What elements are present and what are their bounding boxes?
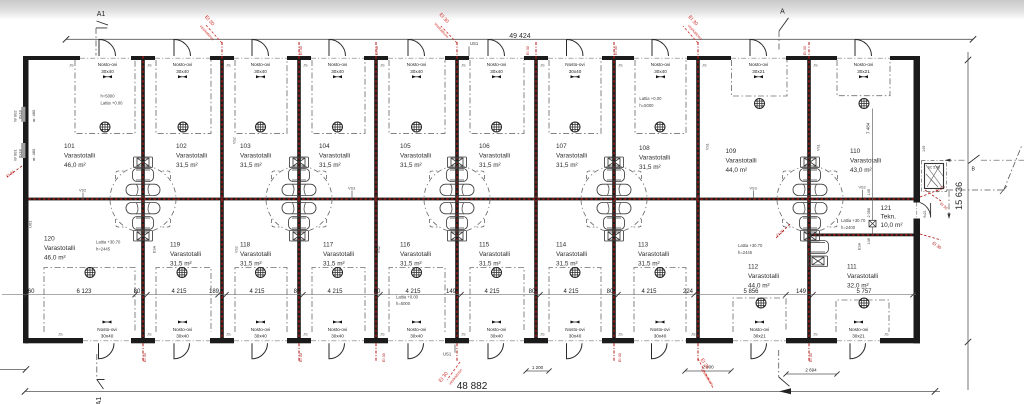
svg-text:Nosto-ovi: Nosto-ovi <box>251 327 270 332</box>
svg-text:224: 224 <box>683 289 694 295</box>
svg-text:30x40: 30x40 <box>569 69 582 74</box>
svg-text:A: A <box>780 9 785 16</box>
svg-text:31,5 m²: 31,5 m² <box>479 162 501 169</box>
svg-text:30x21: 30x21 <box>753 334 766 339</box>
svg-text:JS: JS <box>540 62 545 67</box>
svg-text:30x40: 30x40 <box>410 69 423 74</box>
svg-text:260: 260 <box>24 289 35 295</box>
svg-text:Nosto-ovi: Nosto-ovi <box>173 327 192 332</box>
svg-text:4 215: 4 215 <box>484 289 500 295</box>
svg-text:7 484: 7 484 <box>866 122 871 134</box>
svg-text:46,0 m²: 46,0 m² <box>64 162 86 169</box>
svg-text:30x40: 30x40 <box>331 334 344 339</box>
svg-text:Nosto-ovi: Nosto-ovi <box>487 62 506 67</box>
svg-text:106: 106 <box>479 143 490 150</box>
svg-text:2 056: 2 056 <box>867 208 871 218</box>
svg-text:JS: JS <box>147 332 152 337</box>
svg-text:Varastotalli: Varastotalli <box>556 153 587 160</box>
svg-text:JS: JS <box>303 332 308 337</box>
svg-text:JS: JS <box>691 332 696 337</box>
svg-text:80: 80 <box>134 289 141 295</box>
svg-text:30x21: 30x21 <box>857 69 870 74</box>
svg-text:102: 102 <box>176 143 187 150</box>
svg-text:Lattia +30.70: Lattia +30.70 <box>841 218 866 223</box>
svg-text:h=2445: h=2445 <box>738 250 753 255</box>
svg-text:Nosto-ovi: Nosto-ovi <box>651 62 670 67</box>
svg-text:JS: JS <box>702 62 707 67</box>
svg-text:31,5 m²: 31,5 m² <box>400 162 422 169</box>
svg-text:U01: U01 <box>28 220 33 228</box>
svg-text:30x21: 30x21 <box>752 69 765 74</box>
svg-text:115: 115 <box>479 242 490 249</box>
svg-text:B: B <box>972 167 976 173</box>
svg-text:112: 112 <box>748 264 759 271</box>
svg-text:44,0 m²: 44,0 m² <box>726 167 748 174</box>
svg-text:Lattia +30.70: Lattia +30.70 <box>96 240 121 245</box>
svg-text:6 123: 6 123 <box>76 289 92 295</box>
svg-text:ESA: ESA <box>858 242 862 250</box>
svg-text:Nosto-ovi: Nosto-ovi <box>749 62 768 67</box>
svg-text:5 856: 5 856 <box>743 289 759 295</box>
svg-text:1 200: 1 200 <box>532 365 544 370</box>
svg-text:JS: JS <box>147 62 152 67</box>
svg-text:30x21: 30x21 <box>852 334 865 339</box>
svg-text:JS: JS <box>303 62 308 67</box>
svg-text:30x40: 30x40 <box>569 334 582 339</box>
svg-text:VS3: VS3 <box>348 187 355 191</box>
svg-text:Nosto-ovi: Nosto-ovi <box>650 327 669 332</box>
svg-text:30x40: 30x40 <box>654 334 667 339</box>
svg-text:Nosto-ovi: Nosto-ovi <box>98 62 117 67</box>
svg-text:31,5 m²: 31,5 m² <box>639 164 661 171</box>
svg-text:JS: JS <box>618 332 623 337</box>
svg-text:Varastotalli: Varastotalli <box>240 251 271 258</box>
svg-text:Nosto-ovi: Nosto-ovi <box>407 327 426 332</box>
svg-text:117: 117 <box>323 242 334 249</box>
svg-text:Varastotalli: Varastotalli <box>176 153 207 160</box>
svg-text:h=5000: h=5000 <box>639 103 654 108</box>
svg-text:107: 107 <box>556 143 567 150</box>
svg-text:Nosto-ovi: Nosto-ovi <box>849 327 868 332</box>
svg-text:120: 120 <box>44 236 55 243</box>
svg-text:103: 103 <box>240 143 251 150</box>
svg-text:Nosto-ovi: Nosto-ovi <box>407 62 426 67</box>
svg-text:30x40: 30x40 <box>654 69 667 74</box>
svg-text:31,5 m²: 31,5 m² <box>240 260 262 267</box>
svg-text:Varastotalli: Varastotalli <box>240 153 271 160</box>
svg-text:Nosto-ovi: Nosto-ovi <box>854 62 873 67</box>
svg-text:JS: JS <box>618 62 623 67</box>
svg-text:80: 80 <box>294 289 301 295</box>
svg-text:JS: JS <box>461 332 466 337</box>
svg-text:VS3: VS3 <box>750 187 757 191</box>
svg-text:US1: US1 <box>443 352 452 357</box>
svg-text:ESA: ESA <box>153 245 157 253</box>
svg-text:30x40: 30x40 <box>490 69 503 74</box>
svg-text:Lattia +30.70: Lattia +30.70 <box>738 243 763 248</box>
svg-text:5 757: 5 757 <box>856 289 872 295</box>
svg-text:VS2: VS2 <box>377 246 381 253</box>
svg-text:2 694: 2 694 <box>805 367 817 372</box>
svg-text:Varastotalli: Varastotalli <box>400 153 431 160</box>
svg-text:6x18: 6x18 <box>18 149 23 158</box>
svg-text:31,5 m²: 31,5 m² <box>400 260 422 267</box>
svg-text:EI 30: EI 30 <box>803 46 807 55</box>
svg-text:Varastotalli: Varastotalli <box>850 158 881 165</box>
svg-text:Lattia +0.00: Lattia +0.00 <box>396 295 419 300</box>
svg-text:JS: JS <box>540 332 545 337</box>
svg-text:EI 30: EI 30 <box>299 46 303 55</box>
svg-text:30x40: 30x40 <box>254 69 267 74</box>
svg-text:149: 149 <box>796 289 807 295</box>
svg-text:101: 101 <box>64 143 75 150</box>
svg-text:111: 111 <box>847 264 857 271</box>
svg-text:31,5 m²: 31,5 m² <box>240 162 262 169</box>
svg-text:80: 80 <box>374 289 381 295</box>
svg-text:A1: A1 <box>97 11 106 18</box>
svg-text:Varastotalli: Varastotalli <box>639 155 670 162</box>
svg-text:118: 118 <box>240 242 251 249</box>
svg-text:48 882: 48 882 <box>457 381 488 392</box>
svg-text:109: 109 <box>726 148 737 155</box>
svg-text:Varastotalli: Varastotalli <box>323 251 354 258</box>
svg-text:4 215: 4 215 <box>249 289 265 295</box>
svg-text:30x40: 30x40 <box>101 334 114 339</box>
svg-text:EI 30: EI 30 <box>382 353 386 362</box>
svg-text:Nosto-ovi: Nosto-ovi <box>173 62 192 67</box>
svg-text:80: 80 <box>607 289 614 295</box>
svg-text:JS: JS <box>69 62 74 67</box>
svg-text:9x21: 9x21 <box>923 210 927 218</box>
svg-text:43,0 m²: 43,0 m² <box>850 167 872 174</box>
svg-text:Nosto-ovi: Nosto-ovi <box>97 327 116 332</box>
svg-text:4 215: 4 215 <box>563 289 579 295</box>
svg-text:30x40: 30x40 <box>176 334 189 339</box>
svg-text:Varastotalli: Varastotalli <box>479 153 510 160</box>
svg-text:104: 104 <box>319 143 330 150</box>
svg-text:149: 149 <box>446 289 457 295</box>
svg-text:A1: A1 <box>96 397 103 404</box>
svg-text:Nosto-ovi: Nosto-ovi <box>565 327 584 332</box>
svg-text:30x40: 30x40 <box>176 69 189 74</box>
svg-text:JS: JS <box>884 332 889 337</box>
svg-text:Nosto-ovi: Nosto-ovi <box>328 62 347 67</box>
svg-text:31,5 m²: 31,5 m² <box>556 162 578 169</box>
svg-text:h=2400: h=2400 <box>841 225 856 230</box>
svg-text:31,5 m²: 31,5 m² <box>319 162 341 169</box>
svg-text:Varastotalli: Varastotalli <box>748 273 779 280</box>
svg-text:EI 30: EI 30 <box>809 353 813 362</box>
svg-text:Varastotalli: Varastotalli <box>556 251 587 258</box>
svg-text:116: 116 <box>400 242 411 249</box>
svg-text:108: 108 <box>639 145 650 152</box>
svg-text:121: 121 <box>881 205 892 212</box>
svg-text:JS: JS <box>58 332 63 337</box>
svg-text:VS1: VS1 <box>706 143 710 150</box>
svg-text:Varastotalli: Varastotalli <box>638 251 669 258</box>
svg-text:VS2: VS2 <box>79 189 86 193</box>
svg-text:Varastotalli: Varastotalli <box>847 273 878 280</box>
svg-text:Nosto-ovi: Nosto-ovi <box>487 327 506 332</box>
svg-text:110: 110 <box>850 148 861 155</box>
svg-text:Varastotalli: Varastotalli <box>400 251 431 258</box>
svg-text:Lattia +0.00: Lattia +0.00 <box>101 101 124 106</box>
svg-text:EI 30: EI 30 <box>526 46 530 55</box>
svg-text:31,5 m²: 31,5 m² <box>170 260 192 267</box>
svg-text:Varastotalli: Varastotalli <box>64 153 95 160</box>
svg-text:EI 30: EI 30 <box>375 46 379 55</box>
svg-text:30x40: 30x40 <box>331 69 344 74</box>
svg-text:4 215: 4 215 <box>171 289 187 295</box>
svg-text:SC 5.08: SC 5.08 <box>928 166 940 170</box>
svg-text:Varastotalli: Varastotalli <box>44 245 75 252</box>
svg-text:30x40: 30x40 <box>101 69 114 74</box>
svg-text:6x18: 6x18 <box>18 110 23 119</box>
svg-text:31,5 m²: 31,5 m² <box>638 260 660 267</box>
svg-text:46,0 m²: 46,0 m² <box>44 254 66 261</box>
svg-text:JS: JS <box>380 62 385 67</box>
svg-text:4 215: 4 215 <box>327 289 343 295</box>
svg-text:h=2445: h=2445 <box>96 247 111 252</box>
svg-text:149: 149 <box>867 189 871 195</box>
svg-text:30x40: 30x40 <box>410 334 423 339</box>
svg-text:113: 113 <box>638 242 649 249</box>
svg-text:VS2: VS2 <box>859 186 866 190</box>
svg-text:EI 30: EI 30 <box>143 353 147 362</box>
svg-text:JS: JS <box>813 62 818 67</box>
svg-text:VS1: VS1 <box>817 144 821 151</box>
svg-text:31,5 m²: 31,5 m² <box>556 260 578 267</box>
svg-text:189: 189 <box>209 289 220 295</box>
svg-text:Lattia +0.00: Lattia +0.00 <box>639 96 662 101</box>
svg-text:JS: JS <box>226 62 231 67</box>
svg-text:15 636: 15 636 <box>954 182 964 210</box>
svg-text:149: 149 <box>922 146 926 152</box>
svg-text:30x40: 30x40 <box>490 334 503 339</box>
svg-text:105: 105 <box>400 143 411 150</box>
svg-text:Nosto-ovi: Nosto-ovi <box>565 62 584 67</box>
svg-text:h=5000: h=5000 <box>396 301 411 306</box>
svg-text:JS: JS <box>380 332 385 337</box>
svg-text:JS: JS <box>226 332 231 337</box>
svg-text:Varastotalli: Varastotalli <box>319 153 350 160</box>
svg-text:80: 80 <box>529 289 536 295</box>
svg-text:EI 30: EI 30 <box>614 46 618 55</box>
svg-text:JS: JS <box>813 332 818 337</box>
svg-text:ar. 480: ar. 480 <box>31 109 36 122</box>
svg-text:49 424: 49 424 <box>509 33 531 40</box>
svg-text:4 215: 4 215 <box>641 289 657 295</box>
svg-text:VS2: VS2 <box>233 137 237 144</box>
svg-text:Varastotalli: Varastotalli <box>726 158 757 165</box>
svg-text:JS: JS <box>461 62 466 67</box>
svg-text:149: 149 <box>867 238 871 244</box>
svg-text:VS2: VS2 <box>235 246 239 253</box>
svg-text:EI 30: EI 30 <box>299 353 303 362</box>
svg-text:114: 114 <box>556 242 567 249</box>
svg-text:h=5000: h=5000 <box>101 94 116 99</box>
svg-text:EI 30: EI 30 <box>618 353 622 362</box>
svg-text:Tekn.: Tekn. <box>881 214 897 221</box>
svg-text:31,5 m²: 31,5 m² <box>176 162 198 169</box>
svg-text:Varastotalli: Varastotalli <box>170 251 201 258</box>
svg-text:Varastotalli: Varastotalli <box>479 251 510 258</box>
svg-text:Nosto-ovi: Nosto-ovi <box>328 327 347 332</box>
svg-text:31,5 m²: 31,5 m² <box>323 260 345 267</box>
svg-text:Nosto-ovi: Nosto-ovi <box>750 327 769 332</box>
svg-text:119: 119 <box>170 242 181 249</box>
svg-text:Nosto-ovi: Nosto-ovi <box>251 62 270 67</box>
svg-text:US1: US1 <box>470 41 479 46</box>
svg-text:10,0 m²: 10,0 m² <box>881 222 904 229</box>
svg-text:ar. 480: ar. 480 <box>31 148 36 161</box>
svg-text:30x40: 30x40 <box>254 334 267 339</box>
svg-text:31,5 m²: 31,5 m² <box>479 260 501 267</box>
